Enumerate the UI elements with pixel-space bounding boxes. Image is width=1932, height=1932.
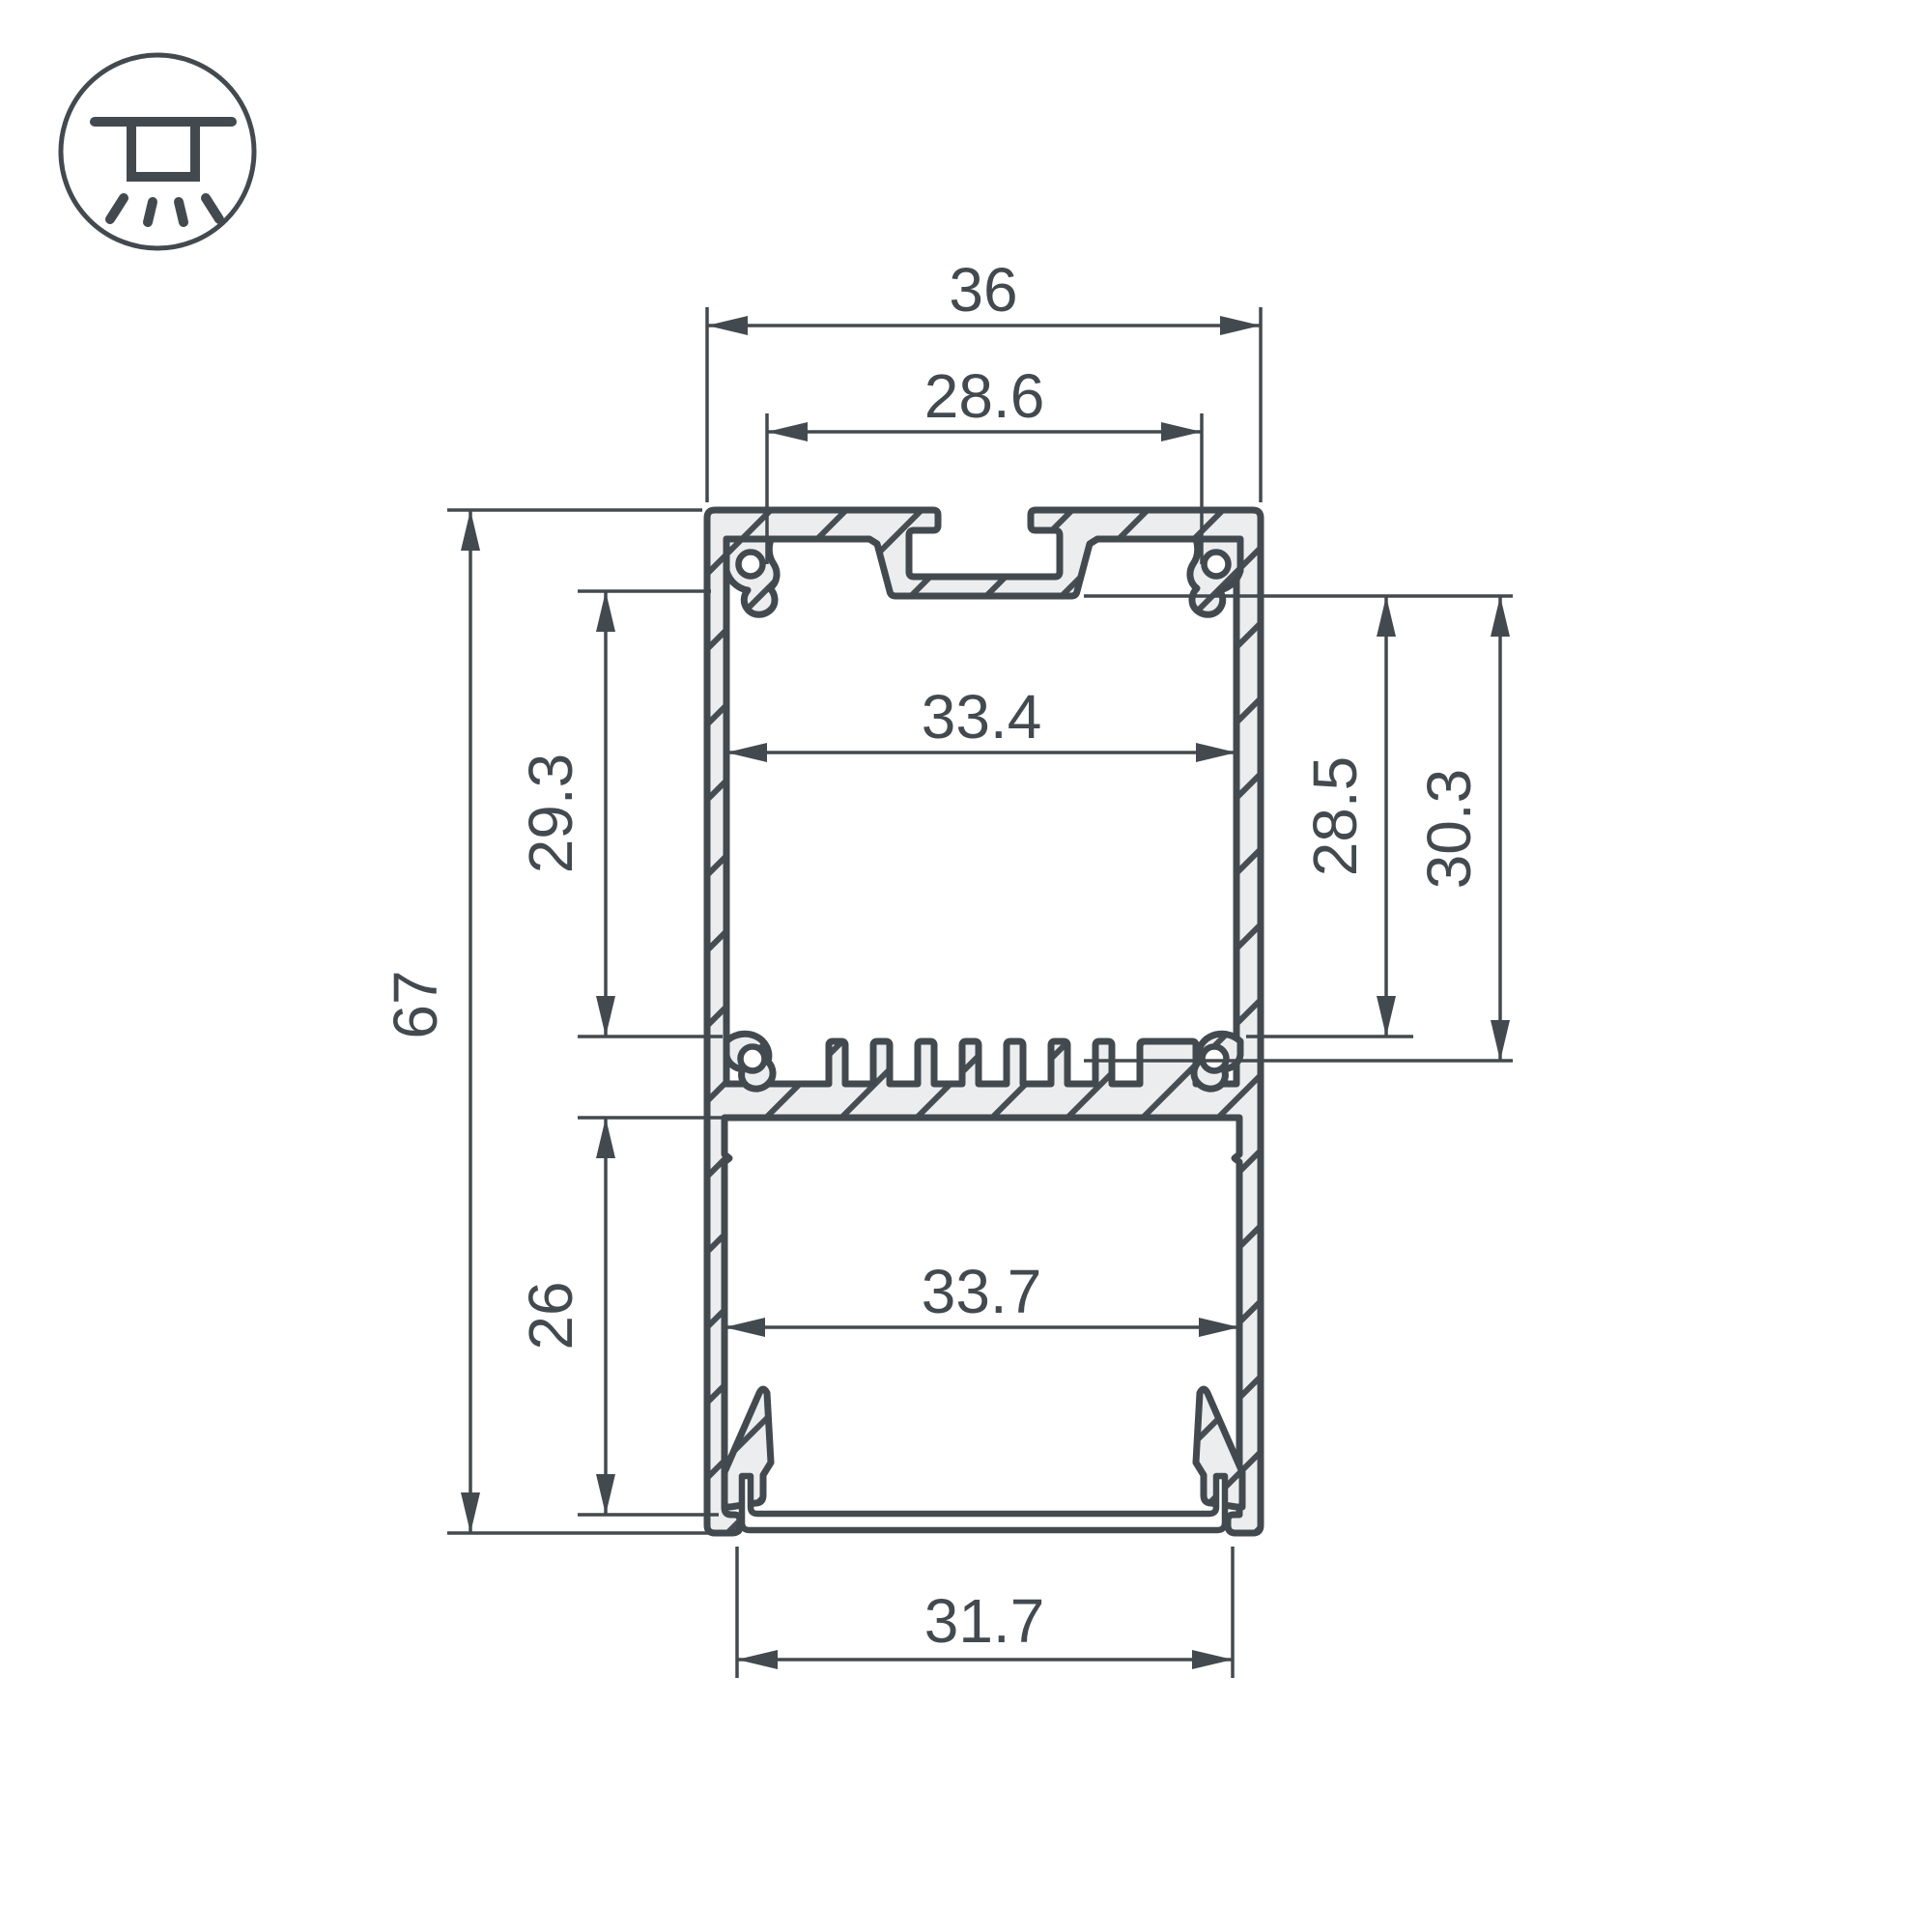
dim-bottom-opening: 31.7 — [737, 1547, 1233, 1678]
screw-hole-mid-left — [741, 1047, 765, 1071]
ceiling-surface-light-icon — [61, 55, 254, 248]
dim-top-width-value: 36 — [949, 255, 1017, 325]
dim-lower-inner-width-value: 33.7 — [922, 1257, 1042, 1326]
dim-right-depth-outer: 30.3 — [1084, 596, 1513, 1061]
dim-right-depth-outer-value: 30.3 — [1414, 769, 1484, 890]
profile-main-shape — [707, 510, 1261, 1533]
dim-upper-inner-width-value: 33.4 — [922, 682, 1042, 752]
dim-upper-cavity-height: 29.3 — [516, 591, 723, 1037]
icon-light-rays — [110, 198, 219, 222]
dim-bottom-opening-value: 31.7 — [924, 1586, 1045, 1656]
profile-body — [707, 510, 1261, 1533]
dim-lower-inner-width: 33.7 — [724, 1257, 1239, 1337]
screw-hole-top-right — [1205, 553, 1229, 577]
dim-lower-cavity-height-value: 26 — [516, 1281, 585, 1350]
icon-circle — [61, 55, 254, 248]
icon-fixture-box — [131, 122, 195, 177]
dimensions-layer: 36 28.6 33.4 33.7 31 — [381, 255, 1513, 1678]
dim-right-depth-inner-value: 28.5 — [1300, 756, 1370, 877]
dim-top-slot-spacing-value: 28.6 — [924, 361, 1045, 431]
screw-hole-top-left — [739, 553, 763, 577]
screw-hole-mid-right — [1203, 1047, 1227, 1071]
profile-cross-section-drawing: 36 28.6 33.4 33.7 31 — [0, 0, 1932, 1932]
dim-lower-cavity-height: 26 — [516, 1118, 723, 1515]
dim-upper-cavity-height-value: 29.3 — [516, 753, 585, 874]
dim-total-height-value: 67 — [381, 970, 450, 1038]
diffuser-tray — [742, 1476, 1225, 1530]
dim-upper-inner-width: 33.4 — [726, 682, 1236, 762]
dim-total-height: 67 — [381, 510, 719, 1533]
drawing-canvas: 36 28.6 33.4 33.7 31 — [0, 0, 1932, 1932]
